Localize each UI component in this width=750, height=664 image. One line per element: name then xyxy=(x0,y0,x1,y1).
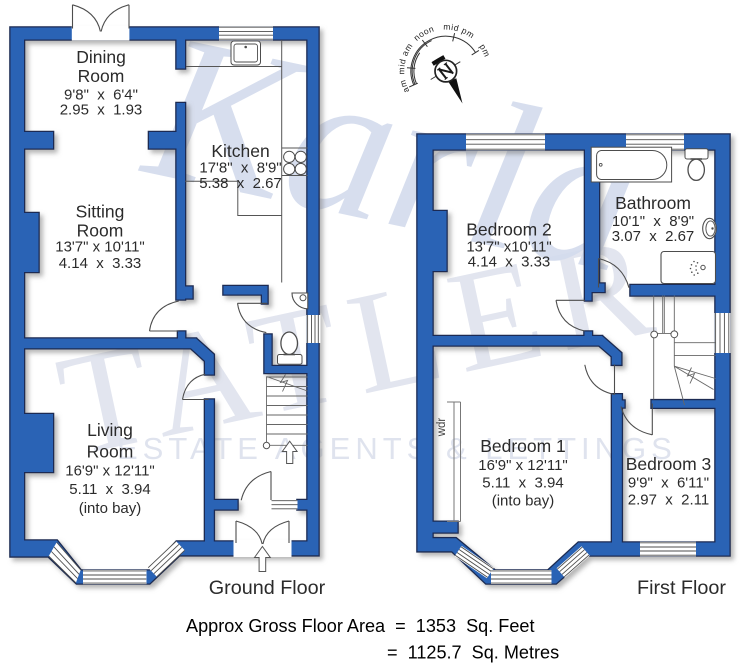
svg-text:Kitchen: Kitchen xyxy=(211,141,269,161)
svg-text:Ground Floor: Ground Floor xyxy=(209,577,326,599)
svg-text:5.38 x 2.67: 5.38 x 2.67 xyxy=(199,175,282,192)
svg-text:Room: Room xyxy=(87,442,134,462)
svg-text:Bedroom 2: Bedroom 2 xyxy=(466,220,552,240)
svg-text:(into bay): (into bay) xyxy=(492,493,555,510)
svg-text:Bedroom 1: Bedroom 1 xyxy=(480,436,566,456)
svg-text:Bathroom: Bathroom xyxy=(615,193,691,213)
svg-text:Room: Room xyxy=(78,66,125,86)
svg-text:= 1125.7 Sq. Metres: = 1125.7 Sq. Metres xyxy=(387,643,559,663)
svg-text:16'9" x 12'11": 16'9" x 12'11" xyxy=(65,463,155,480)
svg-text:2.97 x 2.11: 2.97 x 2.11 xyxy=(628,492,709,509)
svg-text:16'9" x 12'11": 16'9" x 12'11" xyxy=(478,457,568,474)
svg-text:3.07 x 2.67: 3.07 x 2.67 xyxy=(612,228,695,245)
svg-text:9'9" x 6'11": 9'9" x 6'11" xyxy=(628,475,709,492)
svg-text:First Floor: First Floor xyxy=(637,577,726,599)
svg-text:Sitting: Sitting xyxy=(76,202,125,222)
svg-text:4.14 x 3.33: 4.14 x 3.33 xyxy=(468,253,551,270)
svg-text:5.11 x 3.94: 5.11 x 3.94 xyxy=(482,475,563,492)
svg-text:13'7" x 10'11": 13'7" x 10'11" xyxy=(55,239,145,256)
svg-text:Room: Room xyxy=(77,221,124,241)
svg-text:2.95 x 1.93: 2.95 x 1.93 xyxy=(60,102,143,119)
svg-text:17'8" x 8'9": 17'8" x 8'9" xyxy=(199,160,281,177)
svg-text:Living: Living xyxy=(87,420,133,440)
svg-text:4.14 x 3.33: 4.14 x 3.33 xyxy=(59,255,142,272)
svg-text:Bedroom 3: Bedroom 3 xyxy=(626,454,712,474)
svg-text:Dining: Dining xyxy=(76,47,126,67)
svg-text:5.11 x 3.94: 5.11 x 3.94 xyxy=(69,481,150,498)
svg-text:Approx Gross Floor Area = 13: Approx Gross Floor Area = 1353 Sq. Feet xyxy=(186,616,534,636)
svg-text:wdr: wdr xyxy=(436,418,448,438)
svg-text:ESTATE AGENTS & LETTINGS: ESTATE AGENTS & LETTINGS xyxy=(117,431,677,466)
svg-text:(into bay): (into bay) xyxy=(79,500,142,517)
